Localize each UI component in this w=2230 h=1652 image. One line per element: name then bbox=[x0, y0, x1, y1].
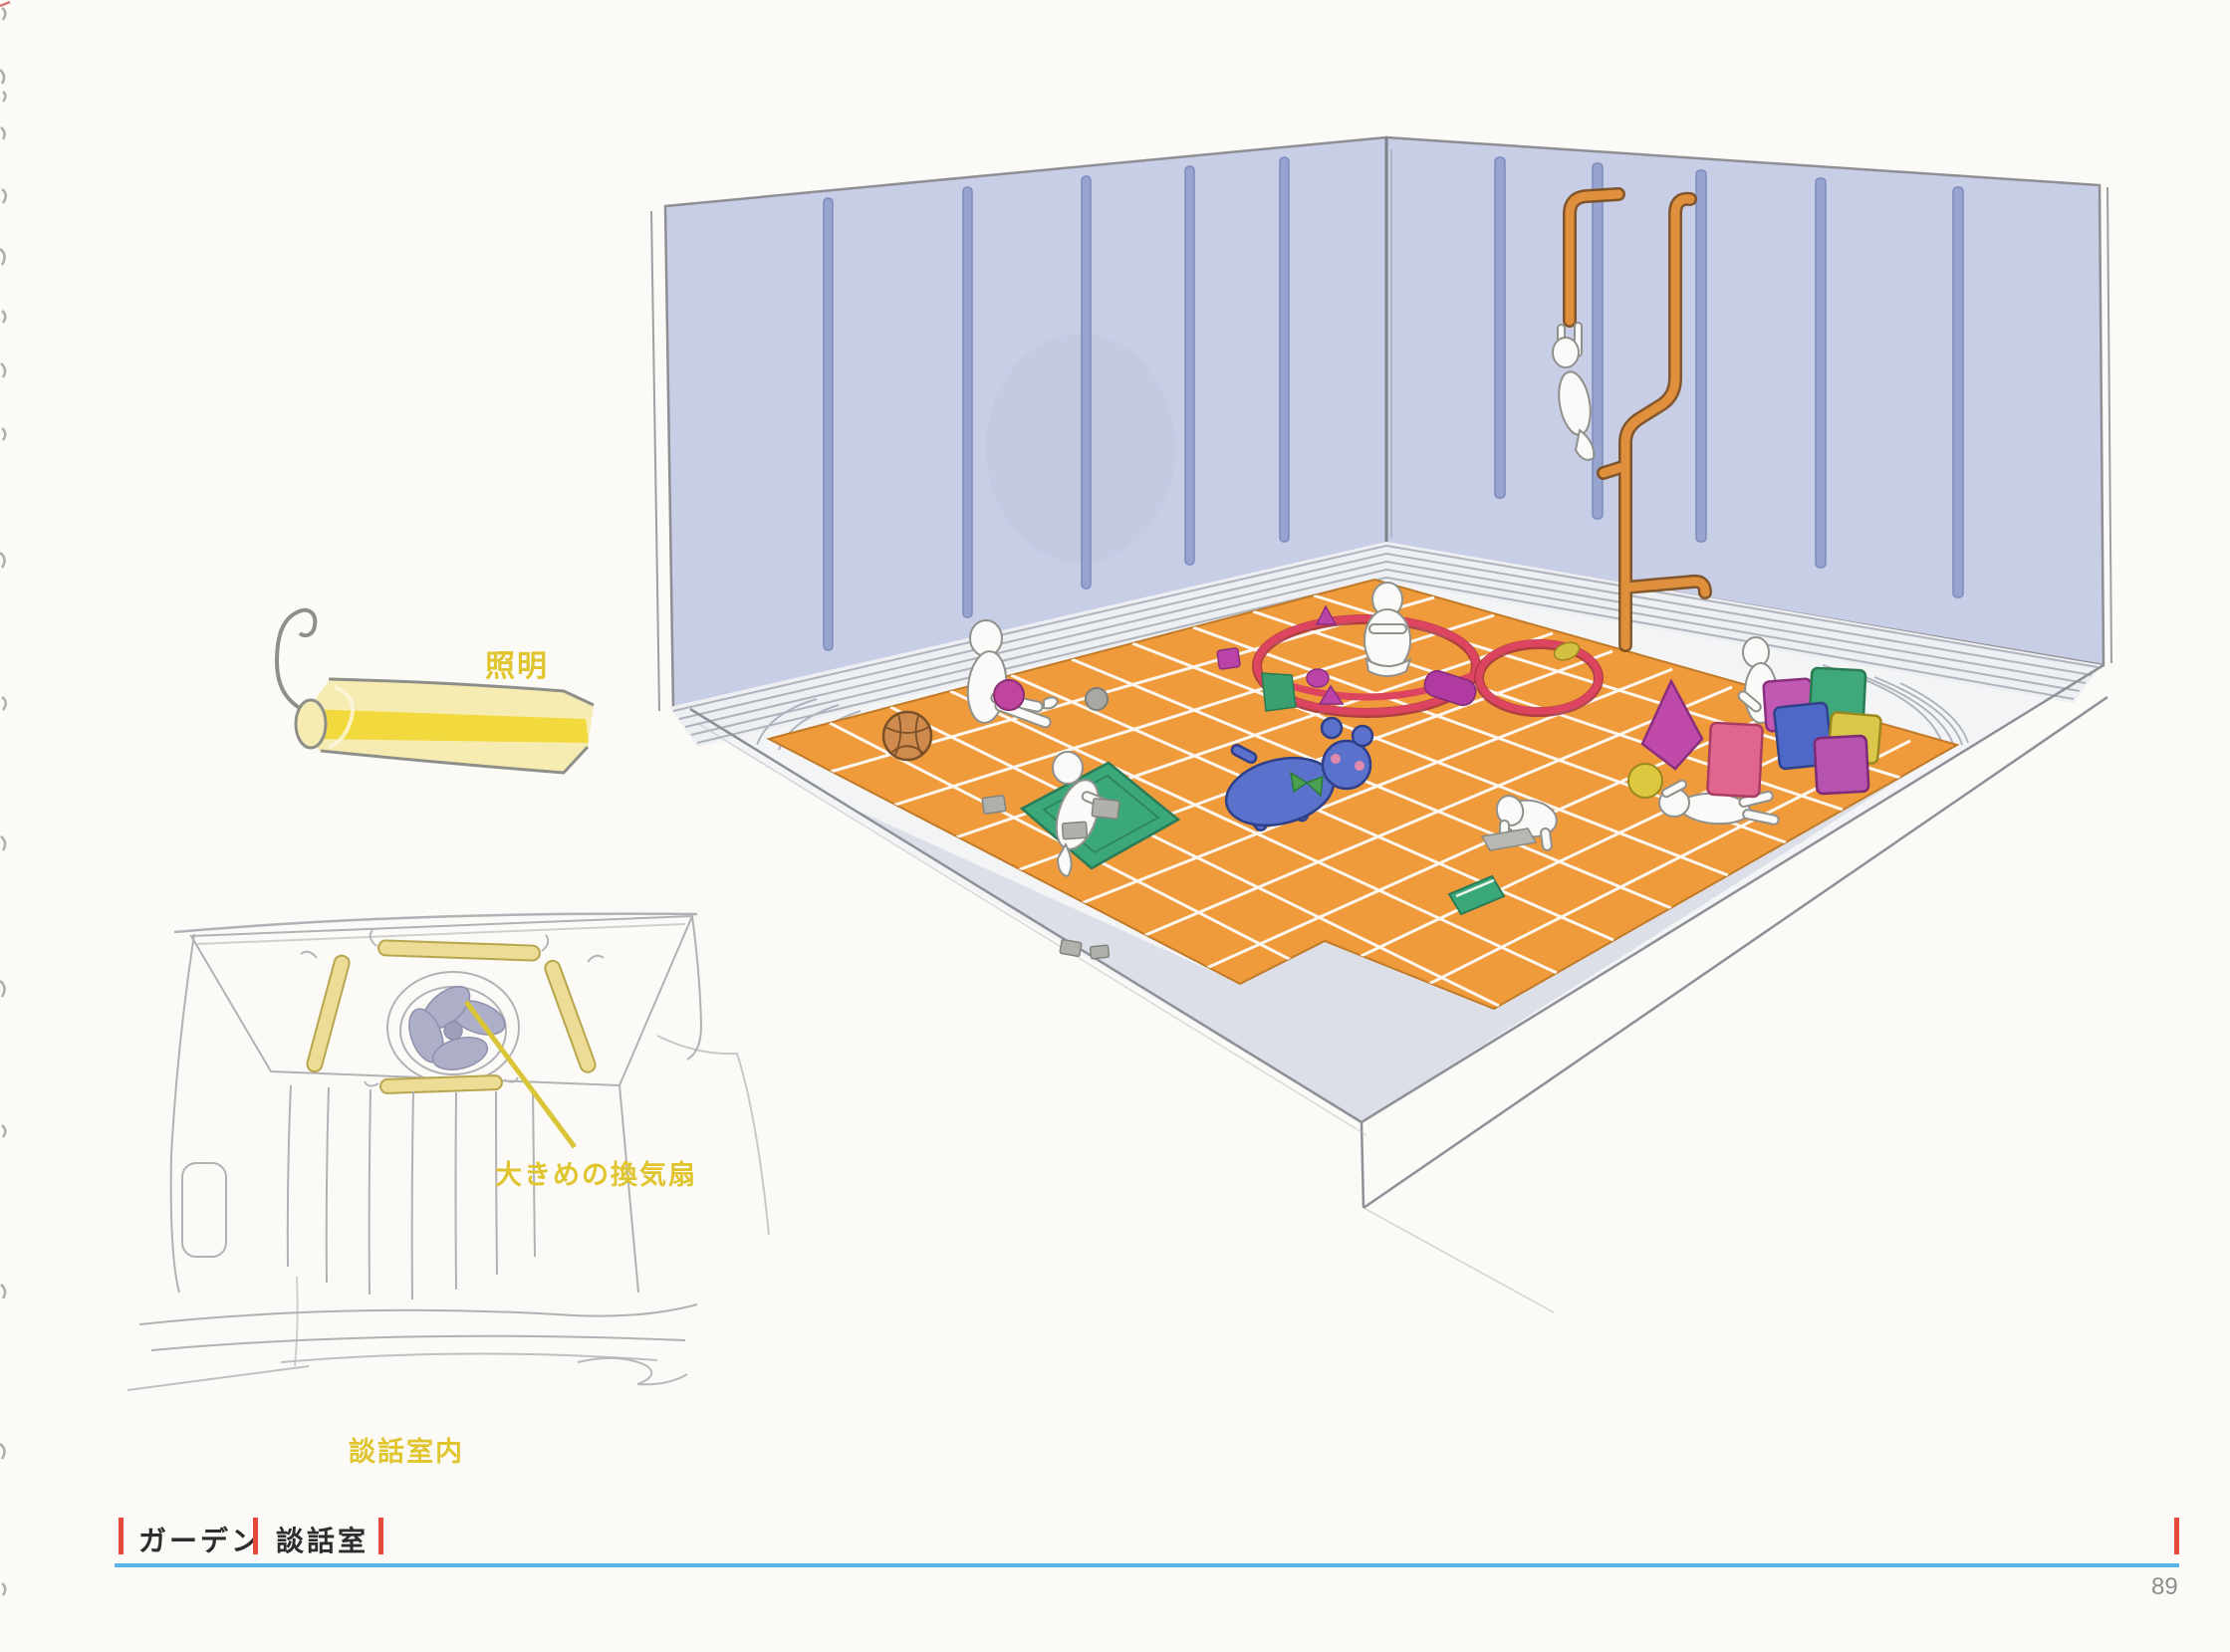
footer-bar-middle bbox=[253, 1518, 258, 1554]
yellow-ball bbox=[1628, 764, 1662, 798]
footer-title: 談話室 bbox=[276, 1520, 369, 1559]
room-illustration bbox=[0, 0, 2230, 1652]
lighting-label: 照明 bbox=[485, 641, 549, 685]
footer-rule bbox=[115, 1563, 2179, 1567]
fan-leader-line bbox=[466, 1002, 575, 1147]
lounge-interior-label: 談話室内 bbox=[349, 1430, 464, 1469]
fan-sketch bbox=[127, 914, 769, 1390]
magenta-ball bbox=[994, 680, 1024, 710]
footer-section: ガーデン bbox=[138, 1520, 262, 1559]
lamp-sketch bbox=[277, 610, 594, 773]
gray-ball bbox=[1086, 688, 1108, 710]
scan-edge-marks bbox=[0, 2, 10, 1595]
footer-bar-right bbox=[2174, 1518, 2179, 1554]
fan-label: 大きめの換気扇 bbox=[495, 1153, 697, 1192]
basketball bbox=[883, 712, 931, 760]
page-number: 89 bbox=[2151, 1573, 2178, 1601]
footer-bar-left bbox=[119, 1518, 124, 1554]
artbook-page: 照明 大きめの換気扇 談話室内 ガーデン 談話室 89 bbox=[0, 0, 2230, 1652]
footer-bar-after-title bbox=[378, 1518, 383, 1554]
